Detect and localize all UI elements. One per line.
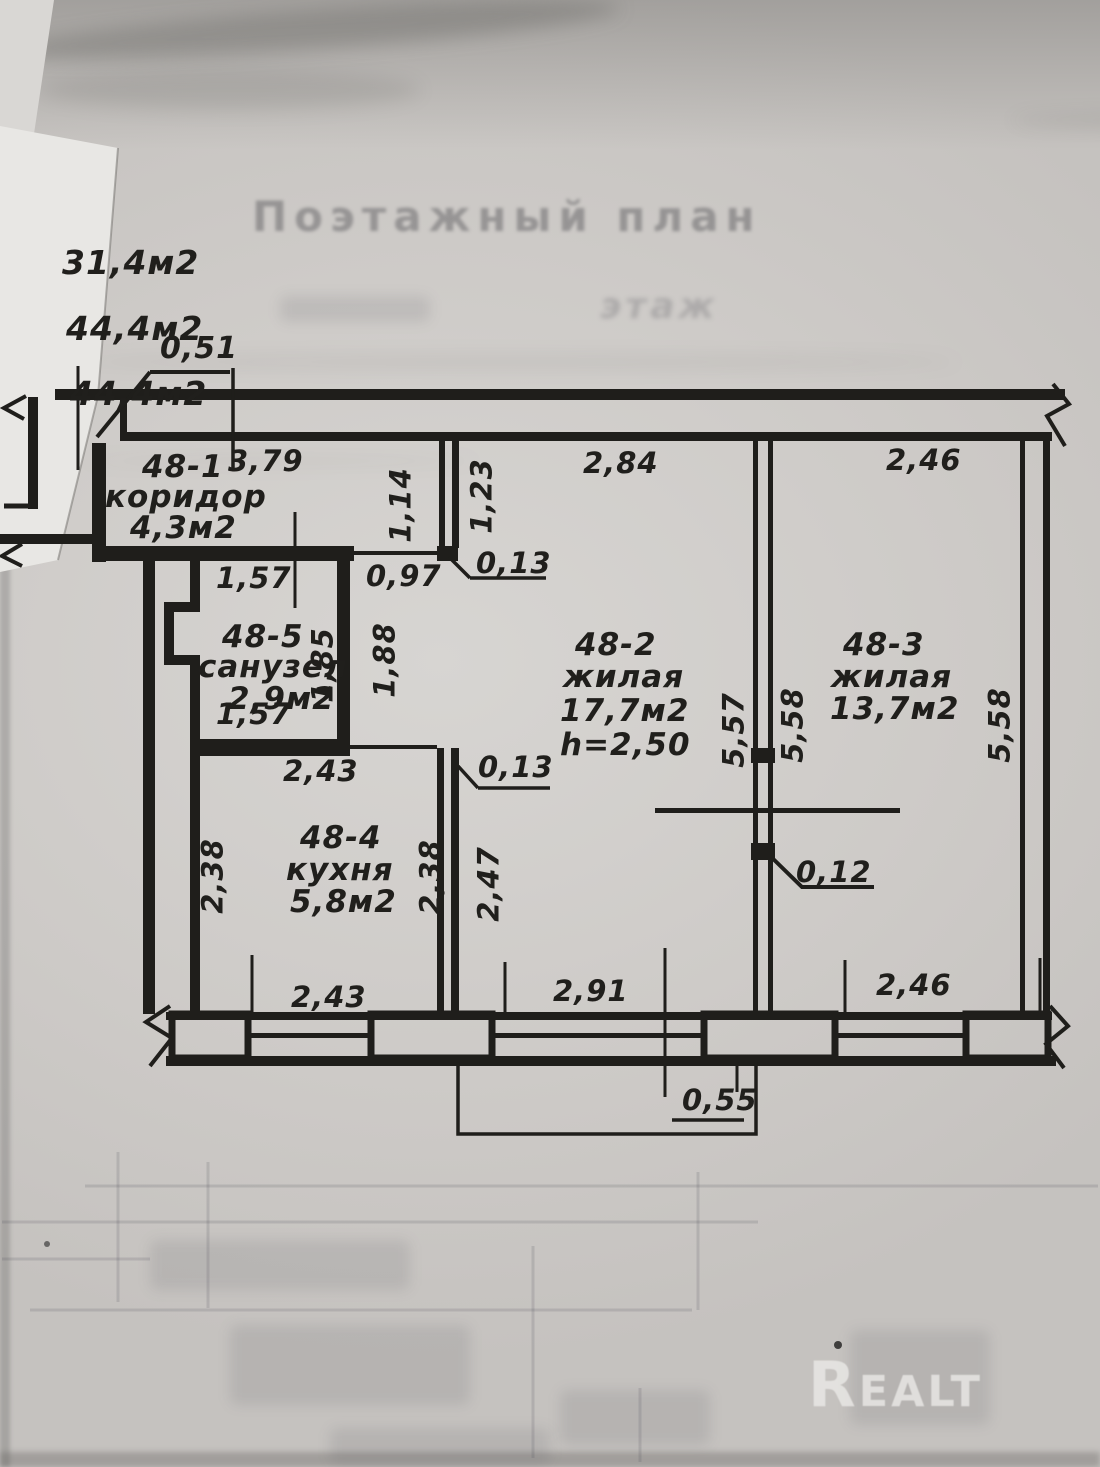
dim-offset-top: 0,13 [476,549,552,578]
dim-offset-mid: 0,13 [478,753,554,782]
ghost-text-blob [330,1428,550,1464]
room-48-1-area: 4,3м2 [130,513,237,544]
dim-corridor-opening: 0,97 [366,562,442,591]
ghost-text-blob [560,1390,710,1445]
dim-r2-bottom: 2,91 [553,977,629,1006]
dim-partition-thickness: 0,12 [796,858,872,887]
dim-r3-bottom: 2,46 [876,971,952,1000]
realt-watermark-logo: Realt [808,1348,983,1421]
ghost-text-blob [150,1240,410,1290]
room-48-1-name: коридор [105,482,267,513]
dim-hall-width: 2,43 [283,757,359,786]
dim-r2-left-height: 5,57 [720,692,749,768]
dim-wc-top: 1,57 [216,564,292,593]
dim-r3-right-height: 5,58 [986,687,1015,763]
dim-partition1-left: 1,14 [387,467,416,543]
dim-r2-lower-left-height: 2,47 [475,846,504,922]
dim-r2-top: 2,84 [583,449,659,478]
dim-entry-door: 0,51 [160,334,238,364]
room-48-2-area: 17,7м2 [560,696,689,727]
dim-r2-right-height: 5,58 [779,687,808,763]
total-area-1: 31,4м2 [62,246,199,279]
dim-hall-height: 1,88 [371,622,400,698]
room-48-3-area: 13,7м2 [830,694,959,725]
room-48-2-height: h=2,50 [560,730,691,761]
dim-kitchen-right-height: 2,38 [417,839,446,915]
room-48-2-name: жилая [563,662,684,693]
dim-wc-bottom: 1,57 [216,700,292,729]
total-area-3: 44,4м2 [70,377,207,410]
dim-corridor-width: 3,79 [228,447,304,476]
room-48-3-id: 48-3 [843,630,925,661]
ink-speck [44,1241,50,1247]
ghost-text-blob [230,1325,470,1405]
dim-r3-top: 2,46 [886,446,962,475]
dim-partition1-right: 1,23 [468,458,497,534]
dim-kitchen-left-height: 2,38 [199,838,228,914]
room-48-3-name: жилая [831,662,952,693]
dim-balcony-depth: 0,55 [682,1086,758,1115]
dim-kitchen-bottom: 2,43 [291,983,367,1012]
dim-wc-right: 1,85 [309,627,338,703]
room-48-2-id: 48-2 [575,630,657,661]
room-48-4-id: 48-4 [300,823,382,854]
room-48-4-area: 5,8м2 [290,887,397,918]
room-48-4-name: кухня [286,855,394,886]
